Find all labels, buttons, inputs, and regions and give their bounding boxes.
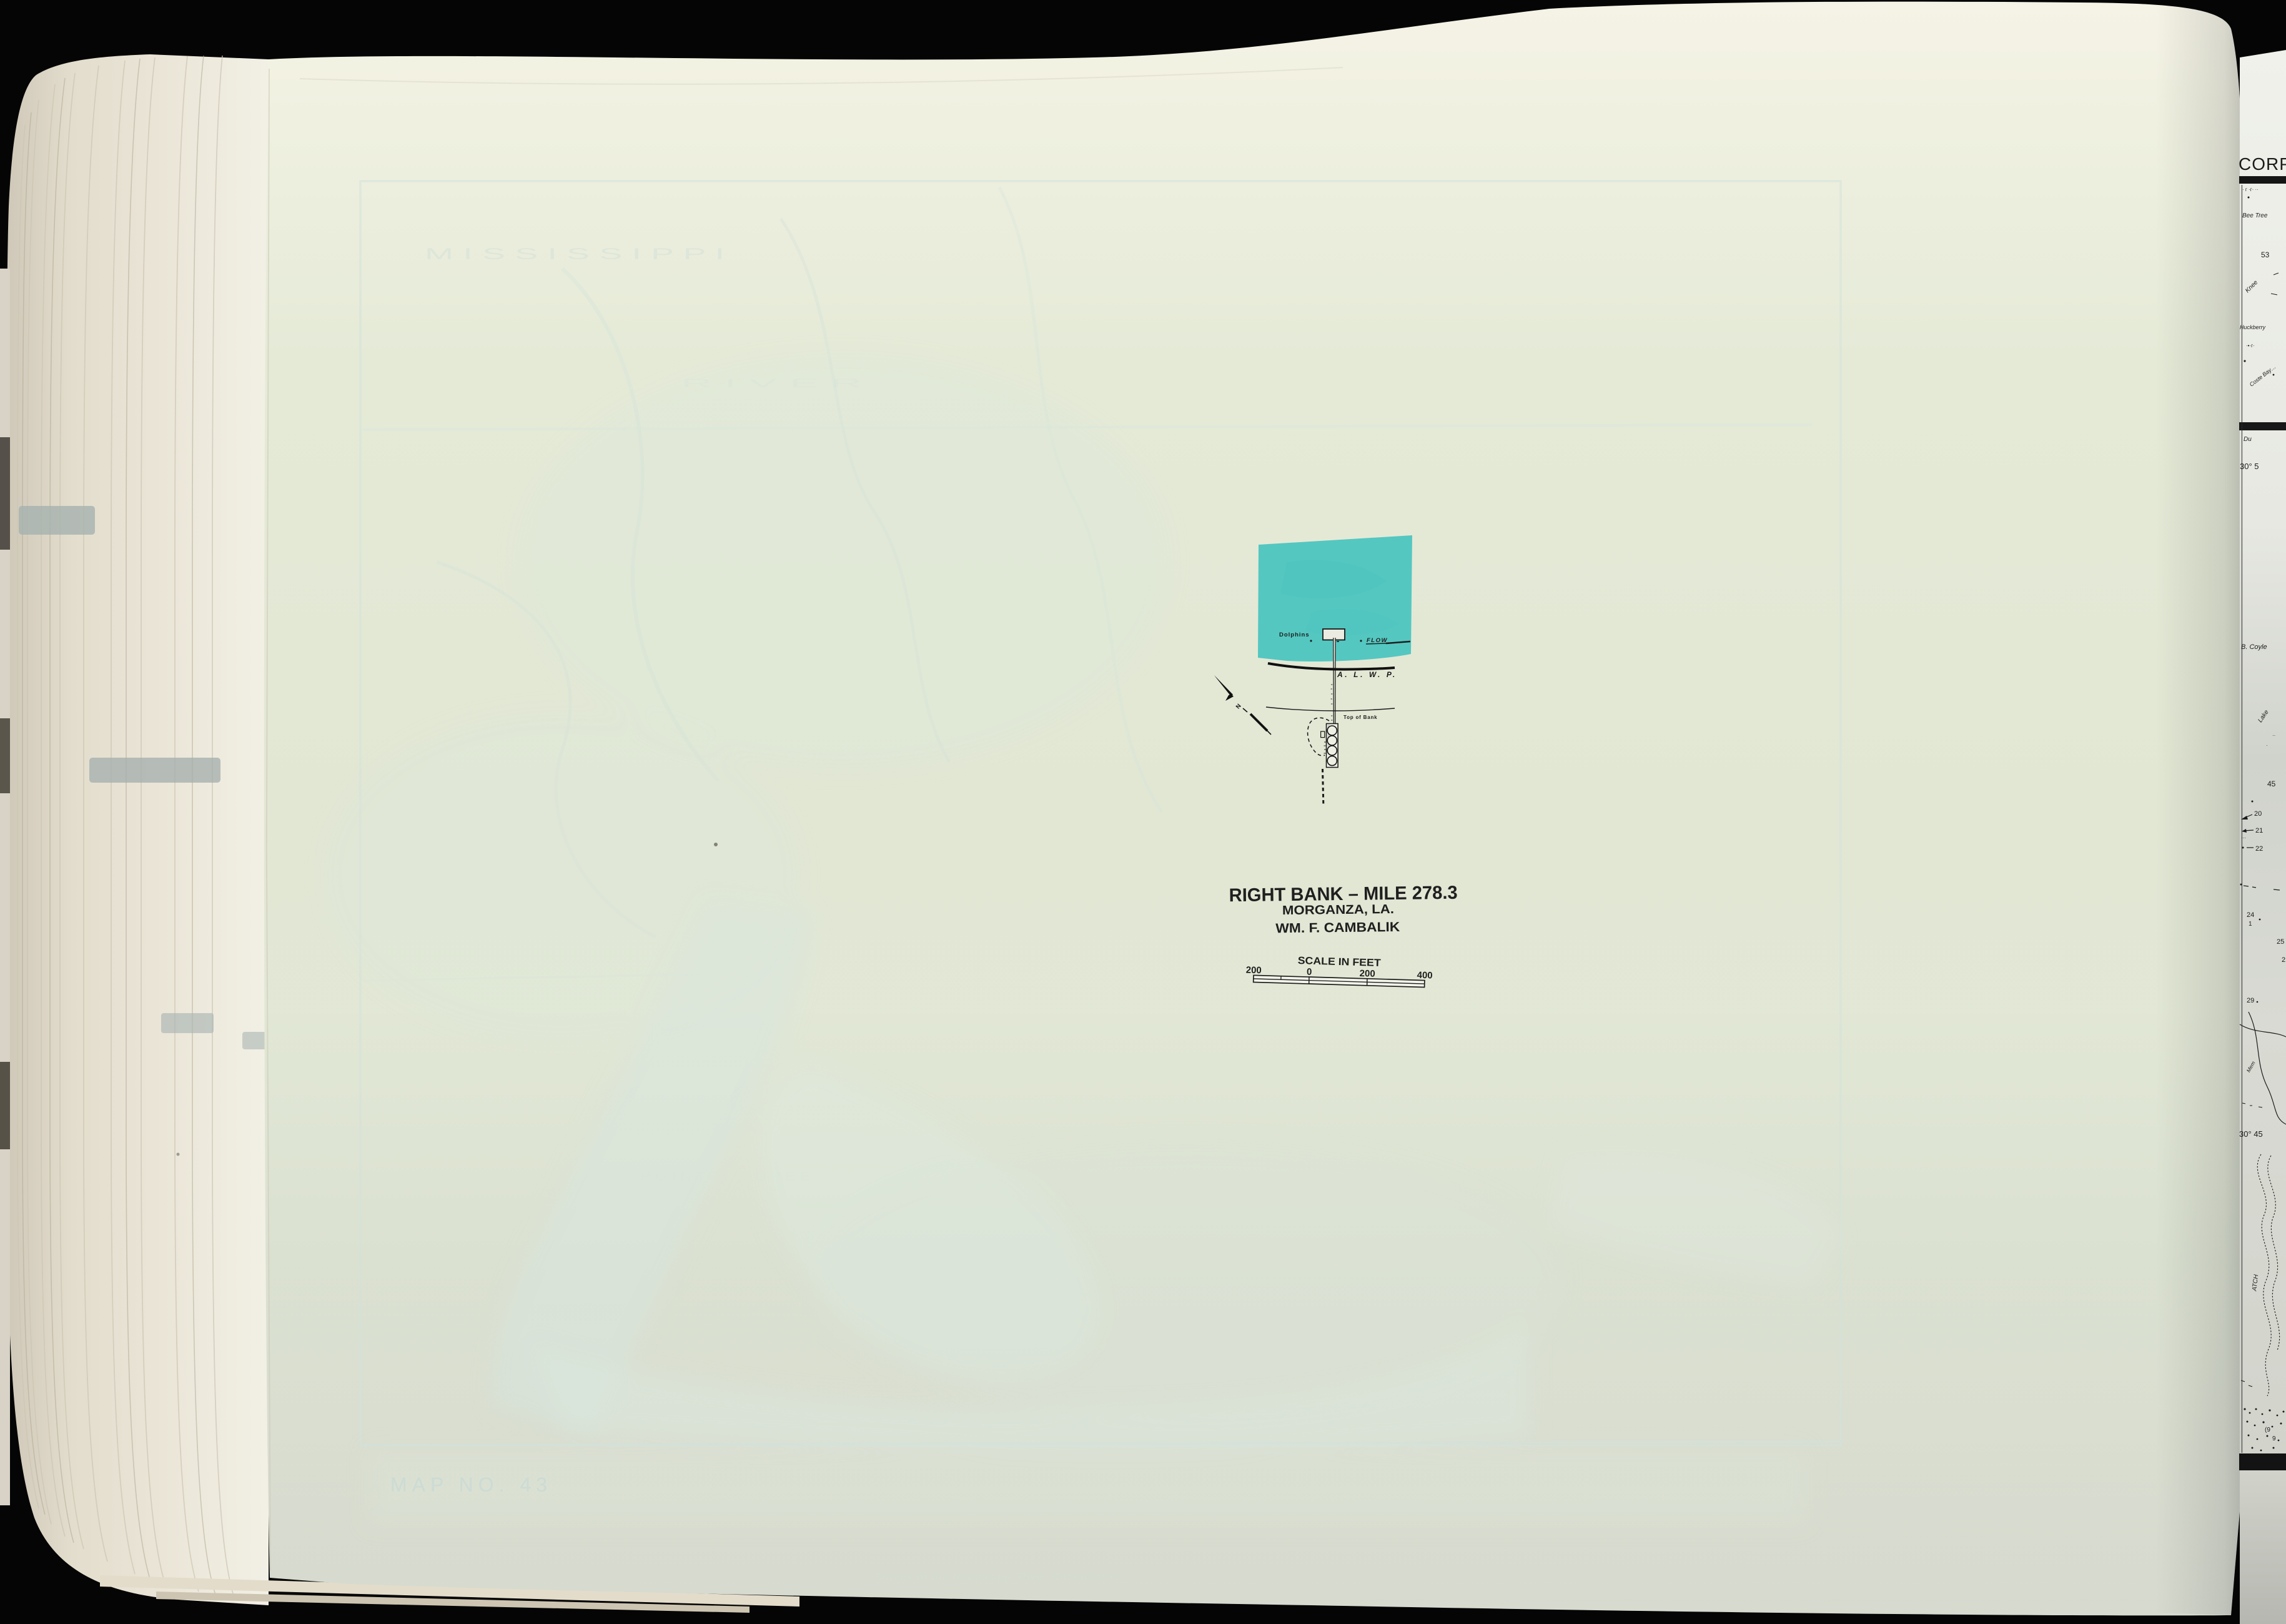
svg-text:0: 0: [1307, 966, 1312, 977]
svg-text:CORPS: CORPS: [2239, 154, 2286, 174]
svg-text:200: 200: [1245, 965, 1262, 976]
svg-text:·•·г·: ·•·г·: [2246, 343, 2255, 349]
svg-text:Survey of the Mississippi Rive: Survey of the Mississippi River Commissi…: [874, 1571, 1120, 1583]
svg-text:29: 29: [2247, 997, 2254, 1004]
svg-text:Bee Tree: Bee Tree: [2242, 212, 2268, 219]
svg-text:MAP NO. 43: MAP NO. 43: [390, 1473, 552, 1496]
svg-text:· г ·г· ··: · г ·г· ··: [2242, 187, 2259, 192]
svg-text:··: ··: [2272, 733, 2275, 738]
svg-text:(9: (9: [2265, 1427, 2270, 1433]
svg-text:P O I N T E C O U P E E: P O I N T E C O U P E E: [641, 1170, 810, 1184]
svg-text:30° 5: 30° 5: [2240, 462, 2259, 471]
svg-text:B. Coyle: B. Coyle: [2241, 643, 2267, 651]
svg-text:Du: Du: [2244, 436, 2252, 443]
svg-text:22: 22: [2255, 845, 2263, 853]
svg-text:Huckberry: Huckberry: [2240, 324, 2266, 330]
svg-text:FLOW: FLOW: [1367, 637, 1388, 644]
svg-text:20: 20: [2254, 810, 2262, 818]
svg-text:WM. F. CAMBALIK: WM. F. CAMBALIK: [1275, 919, 1400, 936]
svg-text:MORGANZA, LA.: MORGANZA, LA.: [1282, 902, 1394, 918]
svg-text:25: 25: [2277, 938, 2284, 946]
svg-text:Dolphins: Dolphins: [1279, 631, 1310, 638]
svg-text:30° 45: 30° 45: [2239, 1129, 2263, 1139]
svg-text:24: 24: [2247, 911, 2254, 919]
svg-text:400: 400: [1417, 970, 1433, 981]
svg-text:M I S S I S S I P P I: M I S S I S S I P P I: [425, 245, 725, 263]
svg-text:45: 45: [2267, 780, 2276, 788]
svg-text:1: 1: [2249, 921, 2252, 928]
svg-text:53: 53: [2261, 250, 2270, 259]
svg-text:2: 2: [2282, 956, 2285, 964]
svg-text:21: 21: [2255, 827, 2263, 834]
svg-text:Top of Bank: Top of Bank: [1343, 715, 1377, 720]
svg-text:A. L. W. P.: A. L. W. P.: [1337, 670, 1397, 679]
svg-text:200: 200: [1359, 968, 1375, 979]
svg-text:·: ·: [2266, 743, 2268, 748]
svg-text:9: 9: [2272, 1435, 2276, 1442]
